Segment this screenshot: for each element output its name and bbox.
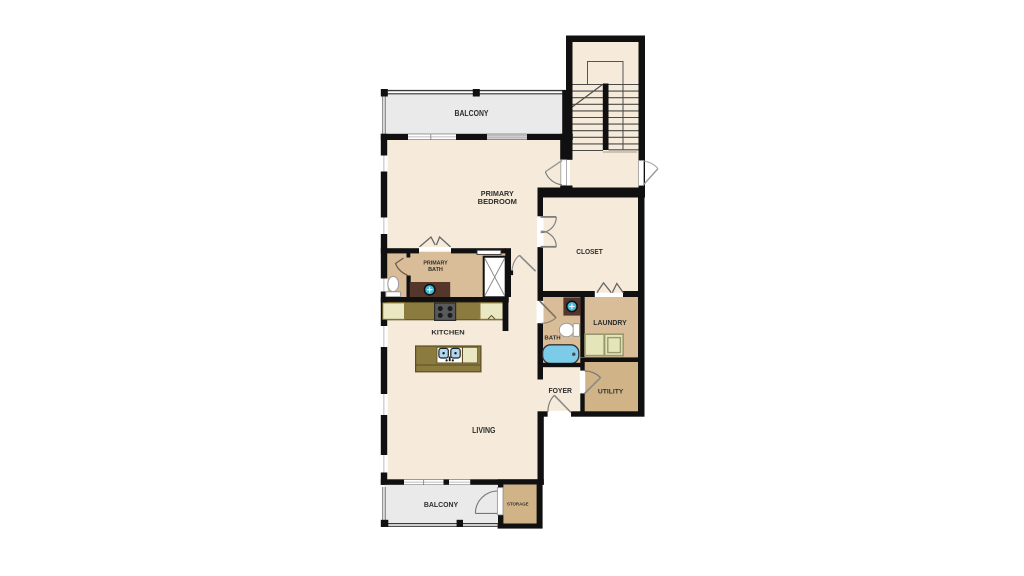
svg-text:STORAGE: STORAGE	[507, 501, 529, 506]
svg-text:LIVING: LIVING	[472, 426, 495, 435]
svg-text:FOYER: FOYER	[548, 388, 572, 395]
svg-text:KITCHEN: KITCHEN	[431, 330, 464, 337]
svg-text:LAUNDRY: LAUNDRY	[593, 320, 627, 327]
svg-text:PRIMARY: PRIMARY	[481, 191, 514, 198]
svg-text:BEDROOM: BEDROOM	[478, 199, 517, 206]
svg-text:BATH: BATH	[428, 267, 443, 273]
svg-text:BALCONY: BALCONY	[424, 500, 458, 509]
svg-text:UTILITY: UTILITY	[598, 388, 624, 395]
svg-text:CLOSET: CLOSET	[576, 249, 603, 256]
svg-text:BATH: BATH	[544, 336, 560, 342]
svg-text:BALCONY: BALCONY	[455, 109, 490, 118]
svg-text:PRIMARY: PRIMARY	[423, 261, 448, 267]
